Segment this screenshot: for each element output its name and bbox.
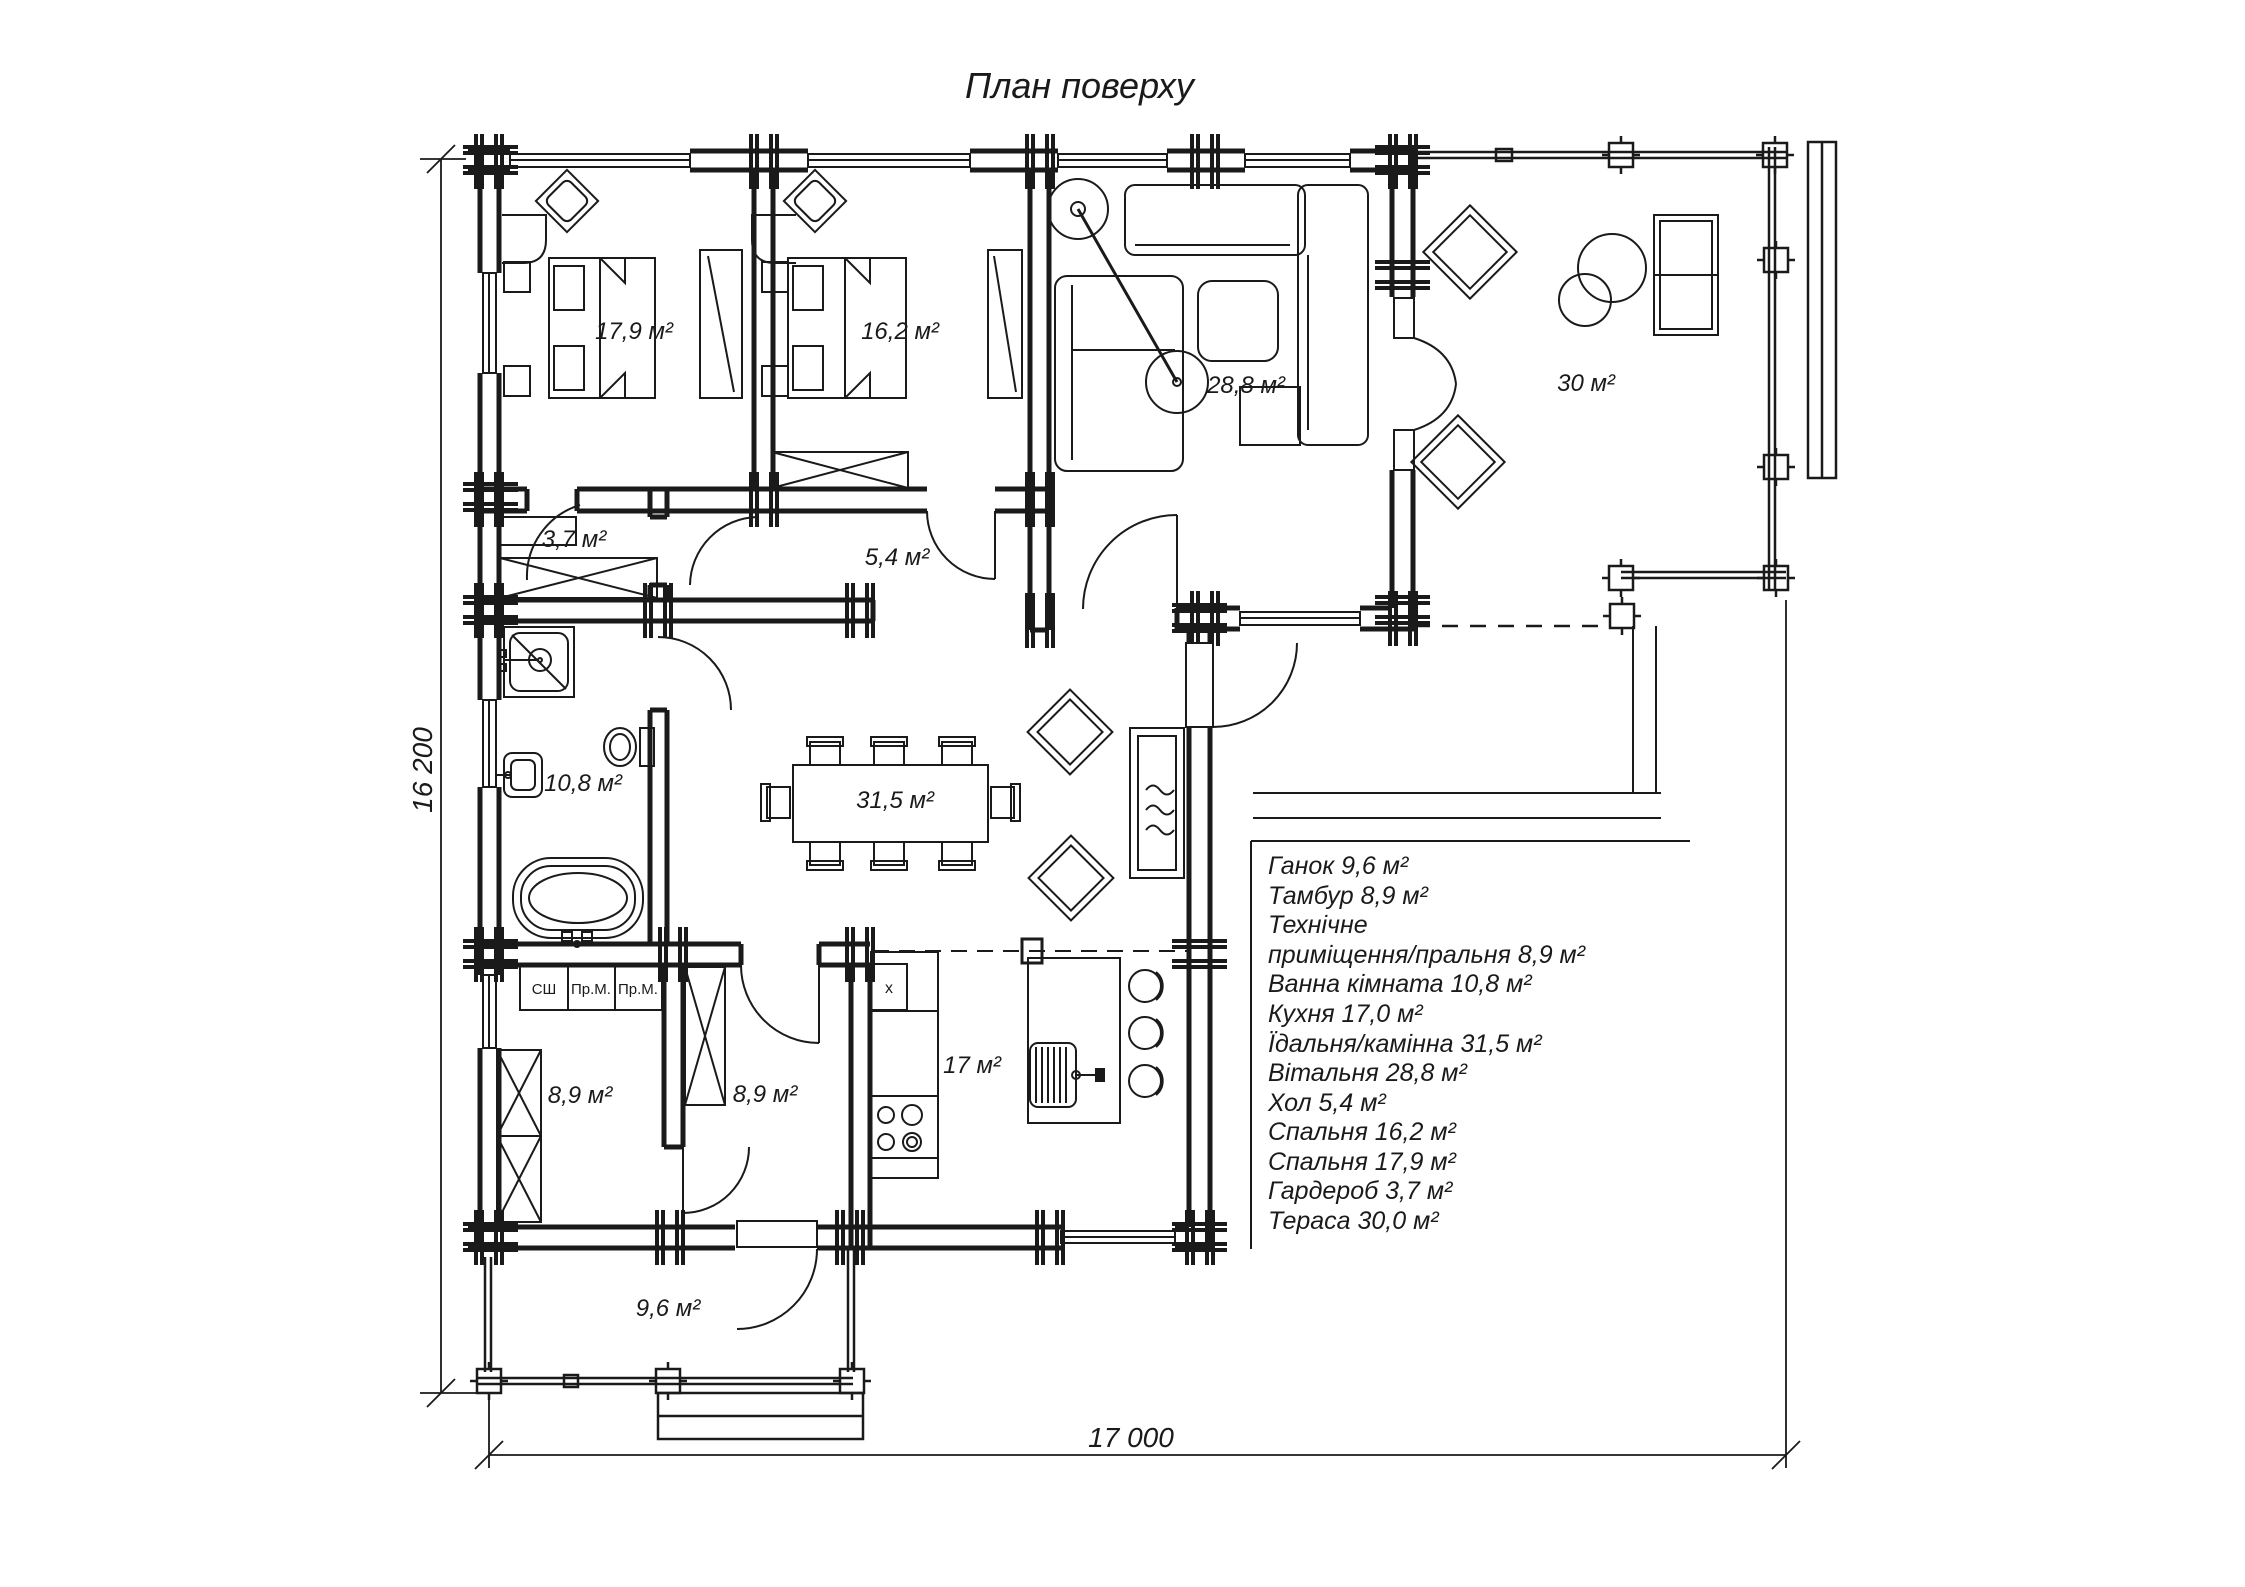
tambour-kitchen-wall: [851, 965, 870, 1248]
kitchen: [871, 952, 1163, 1178]
wardrobe-icon: [988, 250, 1022, 398]
dining-chair-icon: [939, 737, 975, 765]
room-label-bedroom1: 17,9 м²: [595, 318, 674, 345]
sink-icon: [496, 753, 542, 797]
legend-line: Спальня 17,9 м²: [1268, 1148, 1457, 1176]
room-label-porch: 9,6 м²: [636, 1295, 701, 1322]
dining-chair-icon: [871, 737, 907, 765]
fireplace-icon: [1130, 728, 1184, 878]
corner-table-icon: [502, 215, 546, 263]
tambour: [685, 967, 725, 1105]
legend-line: Спальня 16,2 м²: [1268, 1118, 1457, 1146]
round-table-icon: [1578, 234, 1646, 302]
kitchen-island-icon: [1028, 958, 1120, 1123]
tambour-north-wall: [480, 944, 870, 965]
legend-line: Кухня 17,0 м²: [1268, 1000, 1424, 1028]
legend-line: Тераса 30,0 м²: [1268, 1207, 1440, 1235]
tech-tambour-wall: [664, 965, 683, 1147]
terrace-posts: [1602, 136, 1795, 635]
chair-icon: [784, 170, 846, 232]
porch-steps: [658, 1393, 863, 1439]
armchair-icon: [1028, 690, 1113, 775]
toilet-icon: [604, 728, 654, 766]
bathtub-icon: [513, 858, 643, 947]
closet-icon: [497, 1050, 541, 1136]
cabinet-label: Пр.М.: [571, 981, 611, 998]
page-title: План поверху: [965, 65, 1196, 106]
bar-stool-icon: [1129, 1065, 1163, 1097]
coffee-table-icon: [1198, 281, 1278, 361]
nightstand-icon: [504, 366, 530, 396]
dimension-width: 17 000: [1088, 1422, 1174, 1453]
window: [483, 975, 496, 1048]
corner-sofa-icon: [1125, 185, 1368, 445]
counter-mark: х: [885, 980, 893, 997]
terrace-steps-east: [1808, 142, 1836, 478]
legend: Ганок 9,6 м² Тамбур 8,9 м² Технічне прим…: [1267, 852, 1587, 1235]
legend-line: Їдальня/камінна 31,5 м²: [1268, 1030, 1543, 1058]
legend-line: Вітальня 28,8 м²: [1268, 1059, 1468, 1087]
legend-line: Хол 5,4 м²: [1267, 1089, 1387, 1117]
dining-chair-icon: [939, 842, 975, 870]
floor-plan-svg: План поверху: [0, 0, 2245, 1587]
window: [1245, 154, 1350, 167]
bar-stool-icon: [1129, 1017, 1163, 1049]
door-bathroom: [658, 637, 731, 710]
window: [510, 154, 690, 167]
kitchen-counter-icon: [871, 952, 938, 1178]
porch-posts: [470, 1362, 871, 1400]
legend-line: Ванна кімната 10,8 м²: [1268, 970, 1533, 998]
bedroom-partition: [754, 170, 773, 489]
window: [1058, 154, 1167, 167]
stove-icon: [878, 1105, 922, 1151]
bar-stool-icon: [1129, 970, 1163, 1002]
window: [483, 700, 496, 787]
room-label-tech: 8,9 м²: [548, 1082, 613, 1109]
armchair-icon: [1029, 836, 1114, 921]
terrace-chair-icon: [1423, 205, 1516, 298]
room-label-terrace: 30 м²: [1557, 370, 1616, 397]
east-wall: [1392, 151, 1413, 629]
terrace-sofa-icon: [1654, 215, 1718, 335]
door-entrance: [737, 1221, 817, 1329]
window: [483, 273, 496, 373]
dining-chair-icon: [871, 842, 907, 870]
door-bedroom2: [927, 511, 995, 579]
legend-line: Технічне: [1268, 911, 1368, 939]
bedroom2-east-wall: [1030, 170, 1049, 630]
room-label-bathroom: 10,8 м²: [544, 770, 623, 797]
window: [1061, 1231, 1175, 1243]
room-label-living: 28,8 м²: [1206, 372, 1286, 399]
dining-chair-icon: [807, 737, 843, 765]
window: [808, 154, 970, 167]
legend-line: Ганок 9,6 м²: [1268, 852, 1410, 880]
door-wardrobe-hall: [690, 517, 757, 585]
room-label-hall: 5,4 м²: [865, 544, 930, 571]
dining-chair-icon: [991, 784, 1020, 821]
nightstand-icon: [504, 262, 530, 292]
cabinet-label: СШ: [532, 981, 557, 998]
closet-icon: [497, 1136, 541, 1222]
terrace-railing: [1414, 147, 1786, 590]
cabinet-label: Пр.М.: [618, 981, 658, 998]
dining-room: [761, 690, 1184, 921]
room-label-wardrobe: 3,7 м²: [542, 526, 607, 553]
door-dining-tambour: [741, 965, 819, 1043]
legend-line: Тамбур 8,9 м²: [1268, 882, 1429, 910]
hall-north-wall: [480, 489, 1051, 511]
hall-south-wall: [480, 600, 873, 621]
closet-icon: [500, 558, 657, 598]
dimension-height: 16 200: [407, 727, 438, 813]
wardrobe-icon: [700, 250, 742, 398]
door-french-terrace: [1394, 298, 1456, 470]
sofa-icon: [1055, 276, 1183, 471]
room-label-kitchen: 17 м²: [943, 1052, 1002, 1079]
legend-line: Гардероб 3,7 м²: [1268, 1177, 1454, 1205]
shower-icon: [498, 627, 574, 697]
window: [1240, 612, 1360, 625]
room-label-dining: 31,5 м²: [856, 787, 935, 814]
floor-plan-page: План поверху: [0, 0, 2245, 1587]
living-room: [1048, 179, 1368, 471]
legend-line: приміщення/пральня 8,9 м²: [1268, 941, 1587, 969]
door-living-dining: [1083, 515, 1177, 609]
door-exterior-east: [1186, 643, 1297, 727]
door-tech-tambour: [683, 1147, 749, 1213]
dining-chair-icon: [761, 784, 790, 821]
dresser-icon: [772, 452, 908, 488]
bedroom-1: [502, 170, 742, 398]
closet-icon: [685, 967, 725, 1105]
terrace-chair-icon: [1411, 415, 1504, 508]
room-label-bedroom2: 16,2 м²: [861, 318, 940, 345]
room-label-tambour: 8,9 м²: [733, 1081, 798, 1108]
dining-chair-icon: [807, 842, 843, 870]
